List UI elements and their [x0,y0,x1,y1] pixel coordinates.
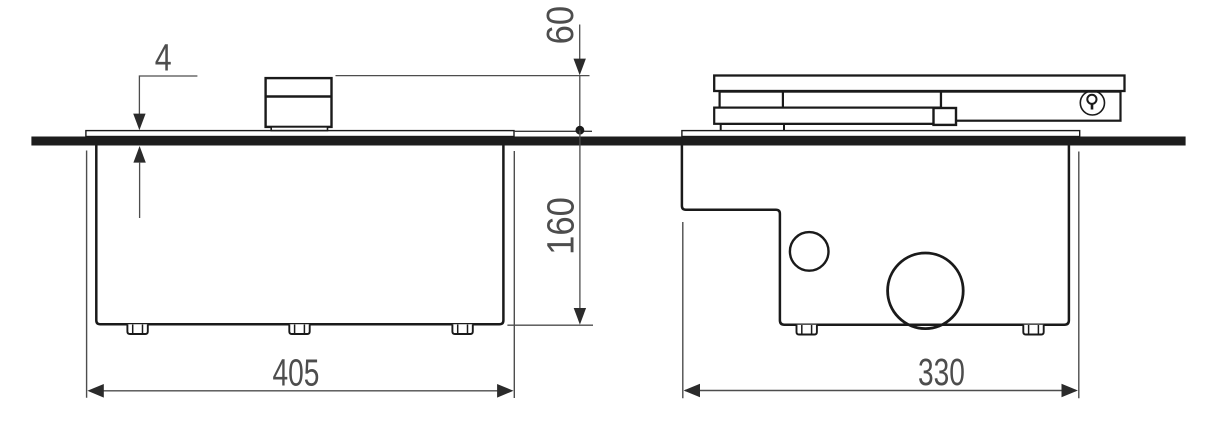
svg-text:330: 330 [918,352,965,394]
svg-text:4: 4 [155,37,172,79]
svg-text:405: 405 [273,353,320,395]
svg-text:160: 160 [539,197,582,255]
svg-text:60: 60 [538,6,581,44]
